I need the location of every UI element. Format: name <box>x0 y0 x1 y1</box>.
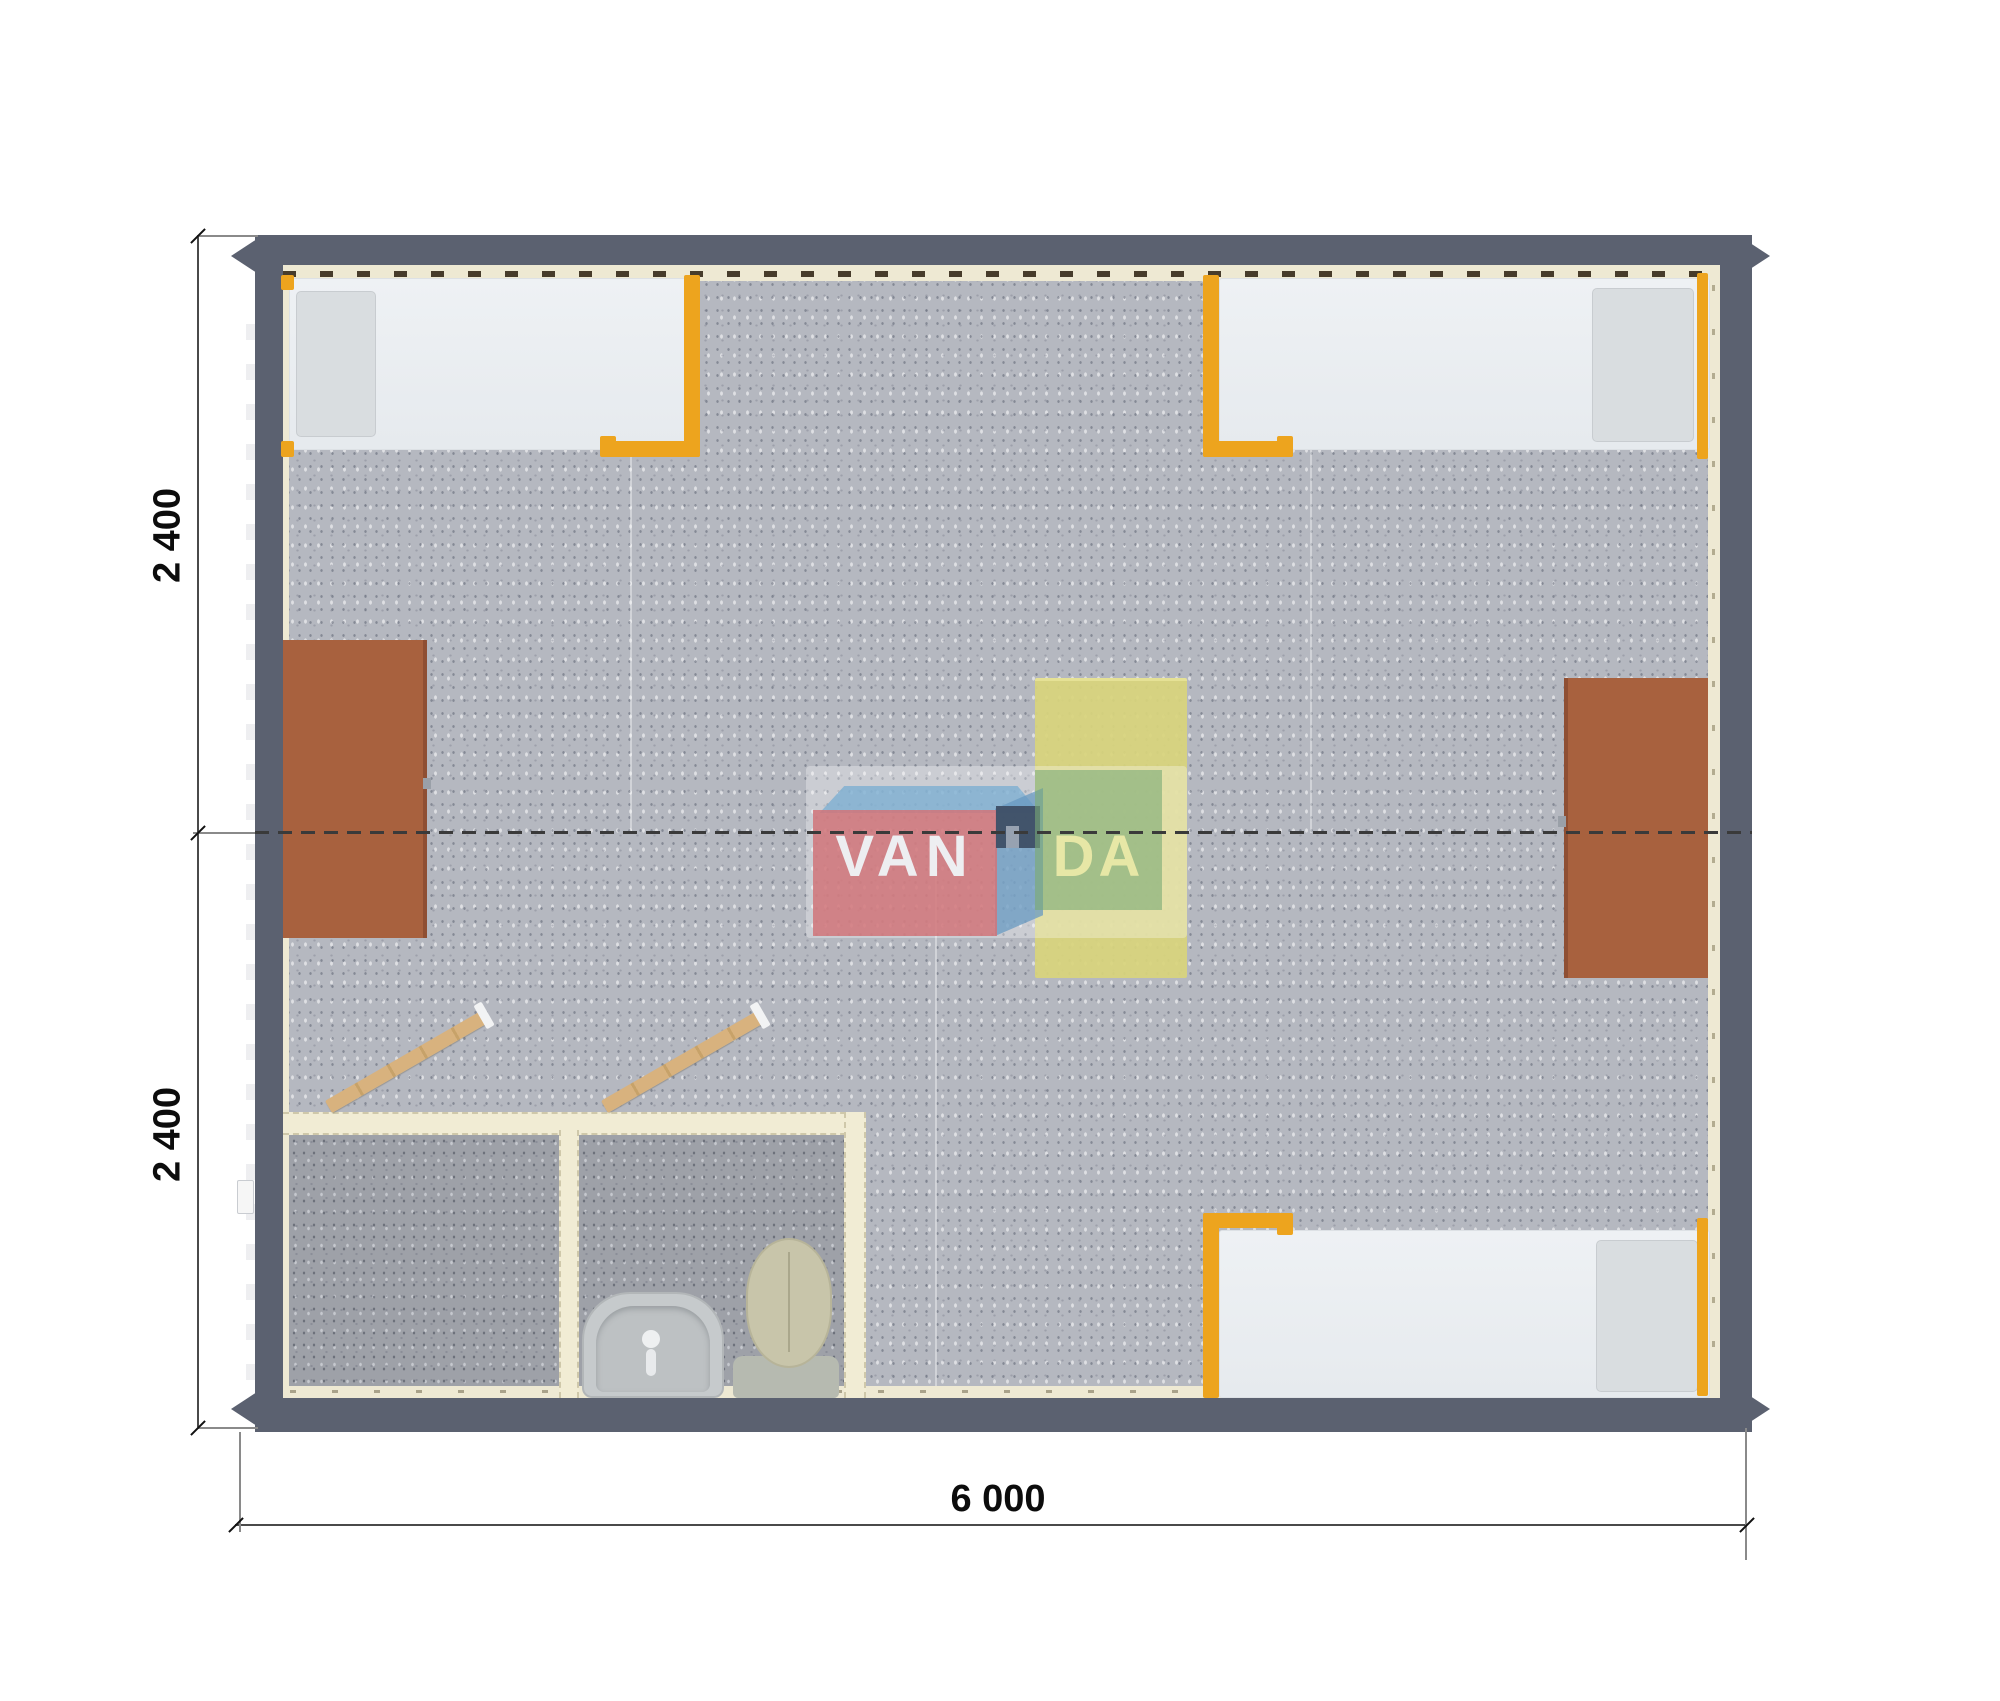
dimension-label-left-top: 2 400 <box>147 456 190 616</box>
bed-top-left-frame <box>608 441 700 457</box>
entry-door-handle <box>237 1180 254 1214</box>
cabinet-right <box>1564 678 1708 978</box>
cabinet-left-handle <box>423 778 431 789</box>
partition-wall-middle <box>559 1130 579 1398</box>
watermark-text-van: VAN <box>813 828 997 886</box>
floor-plan-canvas: VAN DA 2 400 2 400 6 000 <box>0 0 2000 1701</box>
cabinet-right-handle <box>1558 816 1566 827</box>
left-wall-outer-dashes <box>246 300 255 1392</box>
faucet-spout <box>646 1349 656 1376</box>
bed-top-left-pillow <box>296 291 376 437</box>
entry-room-floor <box>289 1135 559 1386</box>
partition-wall-bathroom-right <box>844 1112 866 1398</box>
dimension-line-bottom <box>235 1524 1746 1526</box>
bed-top-left-frame <box>684 275 700 457</box>
cabinet-left <box>283 640 427 938</box>
watermark-text-da: DA <box>1037 828 1160 886</box>
bed-top-right-pillow <box>1592 288 1694 442</box>
bed-top-right-frame <box>1203 275 1219 457</box>
extension-line <box>193 832 255 834</box>
center-axis-dashed-line <box>255 831 1752 834</box>
watermark-box-navy-inner <box>1006 826 1019 848</box>
corner-point-bottom-left <box>231 1392 257 1426</box>
bed-top-right-frame <box>1277 436 1293 457</box>
bed-bottom-right-frame <box>1697 1218 1708 1396</box>
bed-top-left-frame <box>281 275 294 290</box>
extension-line <box>1745 1428 1747 1560</box>
bed-top-left-frame <box>281 441 294 457</box>
bed-bottom-right-frame <box>1203 1213 1219 1398</box>
corner-point-top-left <box>231 239 257 273</box>
dimension-label-bottom: 6 000 <box>913 1478 1083 1521</box>
bed-top-left-frame <box>600 436 616 457</box>
bed-top-right-frame <box>1697 273 1708 459</box>
window-band-dashes <box>283 271 1720 277</box>
toilet-lid-seam <box>788 1252 790 1352</box>
wall-liner-right-dots <box>1712 285 1715 1383</box>
bed-bottom-right-frame <box>1277 1213 1293 1235</box>
extension-line <box>197 235 258 237</box>
bed-bottom-right-pillow <box>1596 1240 1698 1392</box>
corner-point-bottom-right <box>1744 1392 1770 1426</box>
faucet <box>642 1330 660 1348</box>
extension-line <box>197 1427 258 1429</box>
dimension-label-left-bottom: 2 400 <box>147 1055 190 1215</box>
corner-point-top-right <box>1744 239 1770 273</box>
